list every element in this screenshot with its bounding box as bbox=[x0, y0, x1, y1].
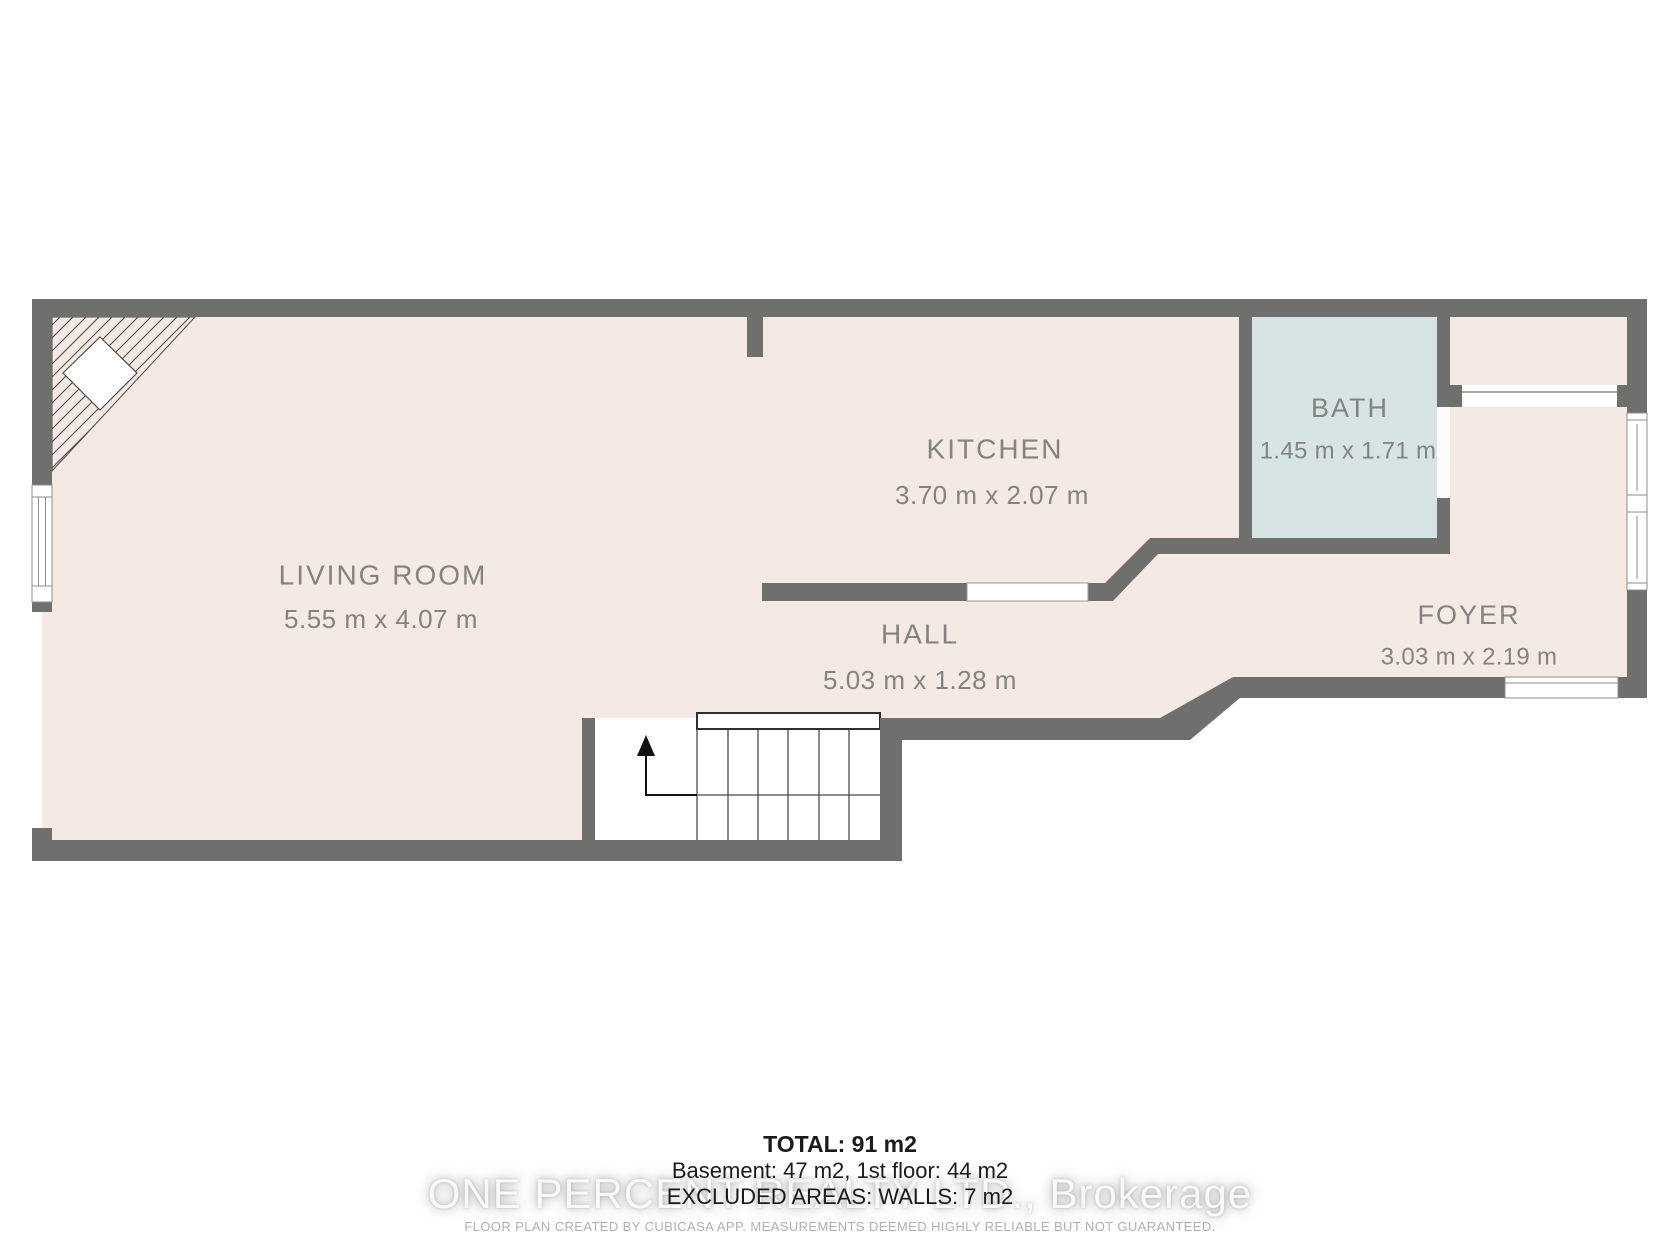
kitchen-pass-through bbox=[967, 583, 1088, 601]
wall-hall-bottom bbox=[880, 718, 1172, 740]
total-area-text: TOTAL: 91 m2 bbox=[0, 1131, 1680, 1158]
wall-alcove-stub bbox=[1617, 385, 1627, 407]
room-label-foyer: FOYER bbox=[1417, 600, 1520, 630]
stair-landing-rail bbox=[697, 713, 880, 729]
bath-floor bbox=[1252, 317, 1437, 538]
wall-kitchen-half bbox=[762, 583, 967, 601]
wall-stair-left bbox=[582, 718, 595, 840]
excluded-areas-text: EXCLUDED AREAS: WALLS: 7 m2 bbox=[0, 1184, 1680, 1210]
room-dimensions-foyer: 3.03 m x 2.19 m bbox=[1381, 643, 1558, 670]
wall-bath-left bbox=[1239, 317, 1252, 554]
window-left bbox=[32, 485, 52, 602]
room-dimensions-bath: 1.45 m x 1.71 m bbox=[1260, 437, 1437, 464]
wall-bottom bbox=[32, 840, 902, 861]
wall-bath-right-bottom bbox=[1437, 498, 1450, 554]
room-label-hall: HALL bbox=[881, 618, 959, 649]
entry-door-opening bbox=[1462, 385, 1617, 407]
floor-areas-text: Basement: 47 m2, 1st floor: 44 m2 bbox=[0, 1158, 1680, 1184]
window-foyer bbox=[1505, 677, 1618, 698]
wall-top bbox=[32, 299, 1647, 317]
floor-plan-drawing: LIVING ROOM 5.55 m x 4.07 m KITCHEN 3.70… bbox=[0, 0, 1680, 1260]
room-dimensions-living-room: 5.55 m x 4.07 m bbox=[284, 604, 478, 634]
room-dimensions-kitchen: 3.70 m x 2.07 m bbox=[895, 480, 1089, 510]
cubicasa-disclaimer-text: FLOOR PLAN CREATED BY CUBICASA APP. MEAS… bbox=[0, 1219, 1680, 1234]
room-label-kitchen: KITCHEN bbox=[927, 433, 1064, 464]
window-right bbox=[1627, 413, 1647, 590]
wall-bath-bottom bbox=[1239, 538, 1450, 554]
bath-door-opening bbox=[1437, 407, 1450, 498]
window-left-lower bbox=[32, 612, 52, 828]
wall-bath-right-stub bbox=[1450, 385, 1462, 407]
room-dimensions-hall: 5.03 m x 1.28 m bbox=[823, 665, 1017, 695]
staircase bbox=[595, 713, 880, 840]
wall-bath-right-top bbox=[1437, 317, 1450, 407]
stair-floor bbox=[595, 718, 880, 840]
floor-plan-page: LIVING ROOM 5.55 m x 4.07 m KITCHEN 3.70… bbox=[0, 0, 1680, 1260]
wall-kitchen-stub bbox=[747, 317, 763, 357]
room-label-bath: BATH bbox=[1311, 393, 1389, 423]
room-label-living-room: LIVING ROOM bbox=[279, 559, 488, 590]
